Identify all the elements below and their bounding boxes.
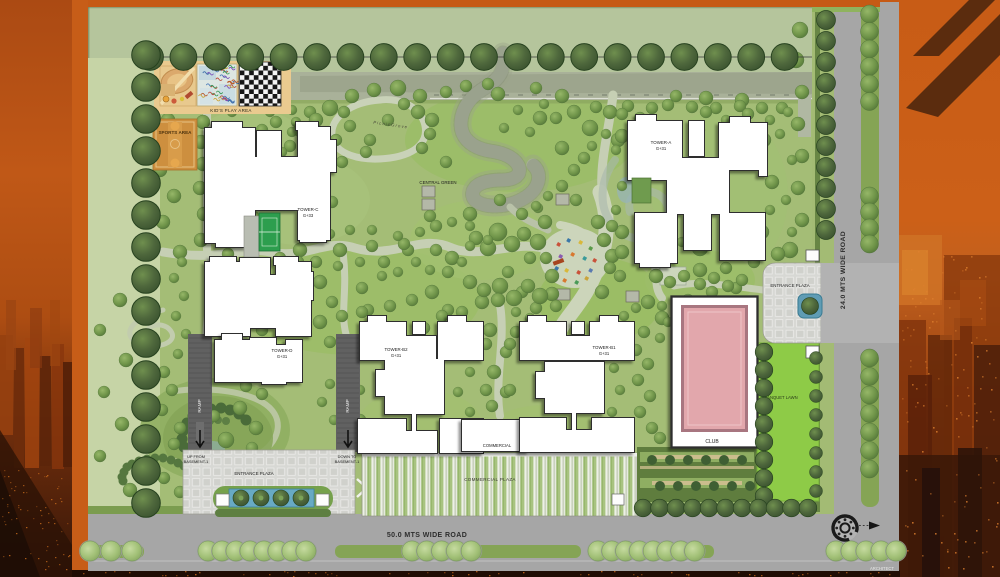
- svg-text:CLUB: CLUB: [705, 439, 719, 445]
- svg-text:TOWER-A: TOWER-A: [651, 140, 672, 145]
- svg-text:G+31: G+31: [656, 146, 667, 151]
- svg-text:TOWER-C: TOWER-C: [298, 207, 319, 212]
- svg-text:G+33: G+33: [303, 213, 314, 218]
- svg-text:TOWER-D: TOWER-D: [272, 348, 293, 353]
- svg-text:TOWER-B2: TOWER-B2: [384, 347, 408, 352]
- svg-text:G+31: G+31: [599, 351, 610, 356]
- svg-text:RAMP: RAMP: [197, 399, 202, 412]
- svg-text:COMMERCIAL: COMMERCIAL: [483, 443, 512, 448]
- svg-text:ARCHITECT: ARCHITECT: [870, 566, 894, 571]
- svg-text:24.0 MTS WIDE ROAD: 24.0 MTS WIDE ROAD: [840, 231, 847, 309]
- svg-text:BASEMENT-1: BASEMENT-1: [335, 459, 360, 464]
- svg-text:50.0 MTS WIDE ROAD: 50.0 MTS WIDE ROAD: [387, 532, 467, 539]
- svg-text:TOWER-B1: TOWER-B1: [592, 345, 616, 350]
- svg-text:KID'S PLAY AREA: KID'S PLAY AREA: [210, 108, 251, 113]
- svg-text:G+31: G+31: [391, 353, 402, 358]
- svg-text:COMMERCIAL PLAZA: COMMERCIAL PLAZA: [464, 477, 516, 482]
- svg-text:RAMP: RAMP: [345, 399, 350, 412]
- svg-text:BASEMENT-1: BASEMENT-1: [184, 459, 209, 464]
- svg-text:ENTRANCE PLAZA: ENTRANCE PLAZA: [770, 283, 809, 288]
- svg-text:SPORTS AREA: SPORTS AREA: [158, 130, 192, 135]
- svg-text:ENTRANCE PLAZA: ENTRANCE PLAZA: [234, 471, 273, 476]
- svg-text:G+31: G+31: [277, 354, 288, 359]
- svg-text:CENTRAL GREEN: CENTRAL GREEN: [419, 180, 456, 185]
